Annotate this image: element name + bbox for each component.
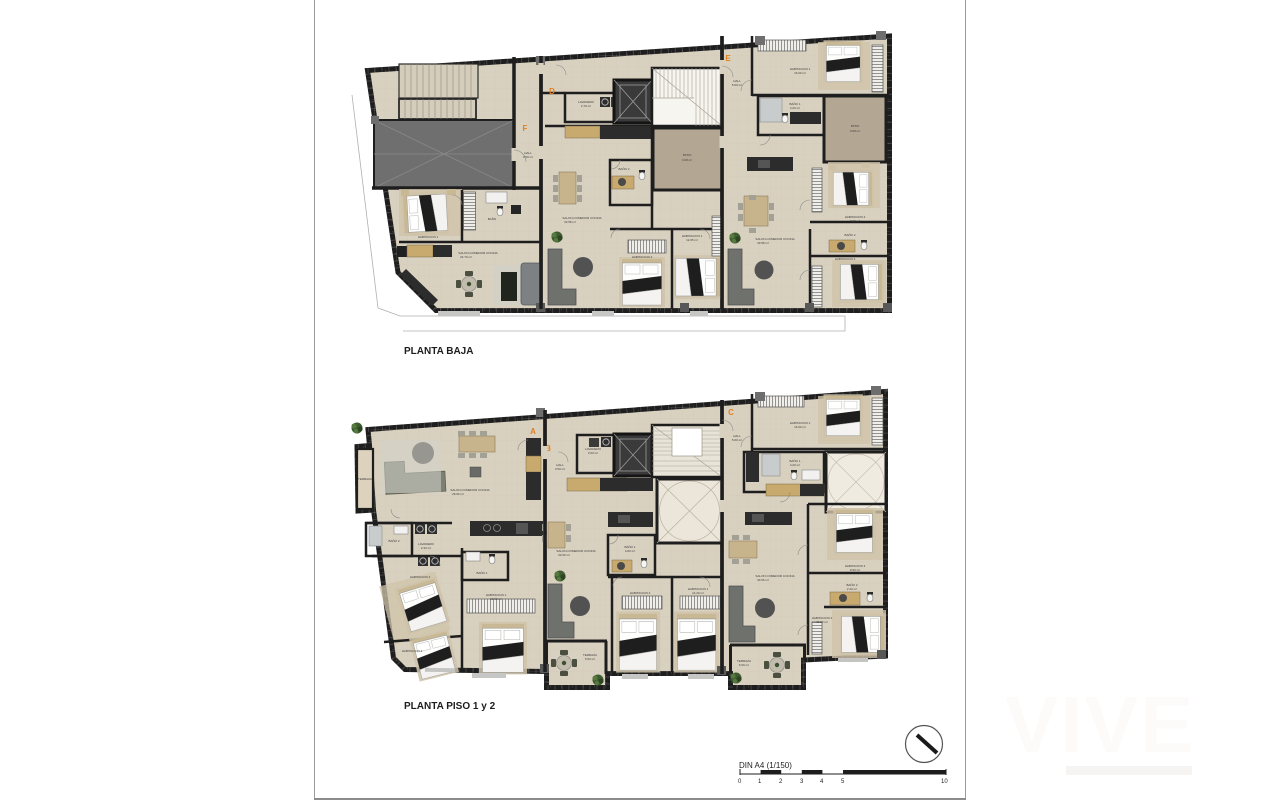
svg-text:33.58 m²: 33.58 m² <box>564 220 576 224</box>
svg-text:BAÑO: BAÑO <box>488 216 497 221</box>
svg-text:13.00 m²: 13.00 m² <box>490 597 502 601</box>
svg-text:3.08 m²: 3.08 m² <box>850 129 860 133</box>
svg-text:E: E <box>725 54 731 63</box>
svg-text:2.40 m²: 2.40 m² <box>847 587 857 591</box>
svg-text:HABITACION 2: HABITACION 2 <box>630 591 651 595</box>
svg-text:4.00 m²: 4.00 m² <box>625 549 635 553</box>
svg-text:2.30 m²: 2.30 m² <box>421 546 431 550</box>
svg-text:14.20 m²: 14.20 m² <box>692 591 704 595</box>
svg-text:3.08 m²: 3.08 m² <box>682 158 692 162</box>
svg-text:5.60 m²: 5.60 m² <box>732 438 742 442</box>
svg-text:PATIO: PATIO <box>851 124 860 128</box>
svg-text:9.90 m²: 9.90 m² <box>850 219 860 223</box>
svg-text:BAÑO 2: BAÑO 2 <box>844 232 855 237</box>
svg-text:3.00 m²: 3.00 m² <box>588 451 598 455</box>
svg-text:HABITACION 1: HABITACION 1 <box>418 235 439 239</box>
svg-text:HABITACION 2: HABITACION 2 <box>835 257 856 261</box>
svg-text:PATIO: PATIO <box>683 153 692 157</box>
svg-text:HABITACION 2: HABITACION 2 <box>632 255 653 259</box>
svg-text:PLANTA PISO 1 y 2: PLANTA PISO 1 y 2 <box>404 701 496 712</box>
svg-text:10: 10 <box>941 779 948 785</box>
svg-text:PLANTA BAJA: PLANTA BAJA <box>404 346 473 357</box>
svg-text:9.90 m²: 9.90 m² <box>850 568 860 572</box>
svg-text:BAÑO 2: BAÑO 2 <box>618 166 629 171</box>
svg-text:33.56 m²: 33.56 m² <box>757 578 769 582</box>
svg-text:2.70 m²: 2.70 m² <box>581 104 591 108</box>
svg-text:VIVE: VIVE <box>1005 680 1195 769</box>
svg-text:32.50 m²: 32.50 m² <box>558 553 570 557</box>
svg-text:BAÑO 1: BAÑO 1 <box>476 570 487 575</box>
svg-text:5.60 m²: 5.60 m² <box>732 83 742 87</box>
svg-text:6.50 m²: 6.50 m² <box>585 657 595 661</box>
svg-text:TERRAZA: TERRAZA <box>358 477 372 481</box>
svg-text:3.50 m²: 3.50 m² <box>555 467 565 471</box>
svg-text:16.00 m²: 16.00 m² <box>794 71 806 75</box>
svg-text:HABITACION 3: HABITACION 3 <box>402 649 423 653</box>
svg-text:12.05 m²: 12.05 m² <box>686 238 698 242</box>
svg-text:29.90 m²: 29.90 m² <box>452 492 464 496</box>
svg-text:16.00 m²: 16.00 m² <box>794 425 806 429</box>
svg-text:6.06 m²: 6.06 m² <box>739 663 749 667</box>
svg-text:DIN A4 (1/150): DIN A4 (1/150) <box>739 761 792 770</box>
svg-text:4.20 m²: 4.20 m² <box>790 106 800 110</box>
svg-text:11.20 m²: 11.20 m² <box>816 620 828 624</box>
svg-text:BAÑO 2: BAÑO 2 <box>388 538 399 543</box>
svg-text:C: C <box>728 408 734 417</box>
svg-text:F: F <box>523 124 528 133</box>
svg-text:HABITACION 2: HABITACION 2 <box>410 575 431 579</box>
svg-text:24.70 m²: 24.70 m² <box>460 255 472 259</box>
svg-text:D: D <box>549 87 555 96</box>
svg-text:33.58 m²: 33.58 m² <box>757 241 769 245</box>
svg-text:4.20 m²: 4.20 m² <box>790 463 800 467</box>
svg-text:A: A <box>530 427 536 436</box>
